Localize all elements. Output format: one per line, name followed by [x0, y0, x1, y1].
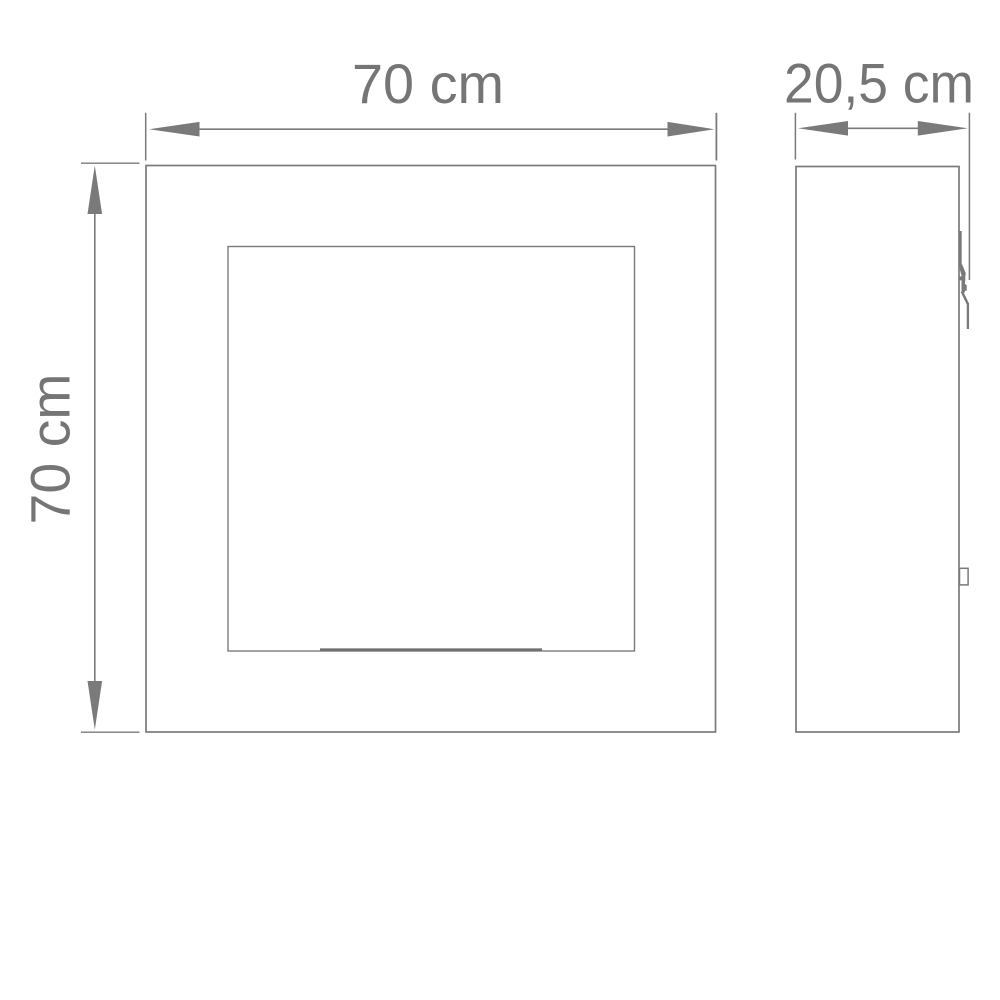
- svg-text:70 cm: 70 cm: [19, 374, 82, 525]
- svg-text:20,5 cm: 20,5 cm: [784, 52, 974, 115]
- svg-text:70 cm: 70 cm: [352, 52, 504, 115]
